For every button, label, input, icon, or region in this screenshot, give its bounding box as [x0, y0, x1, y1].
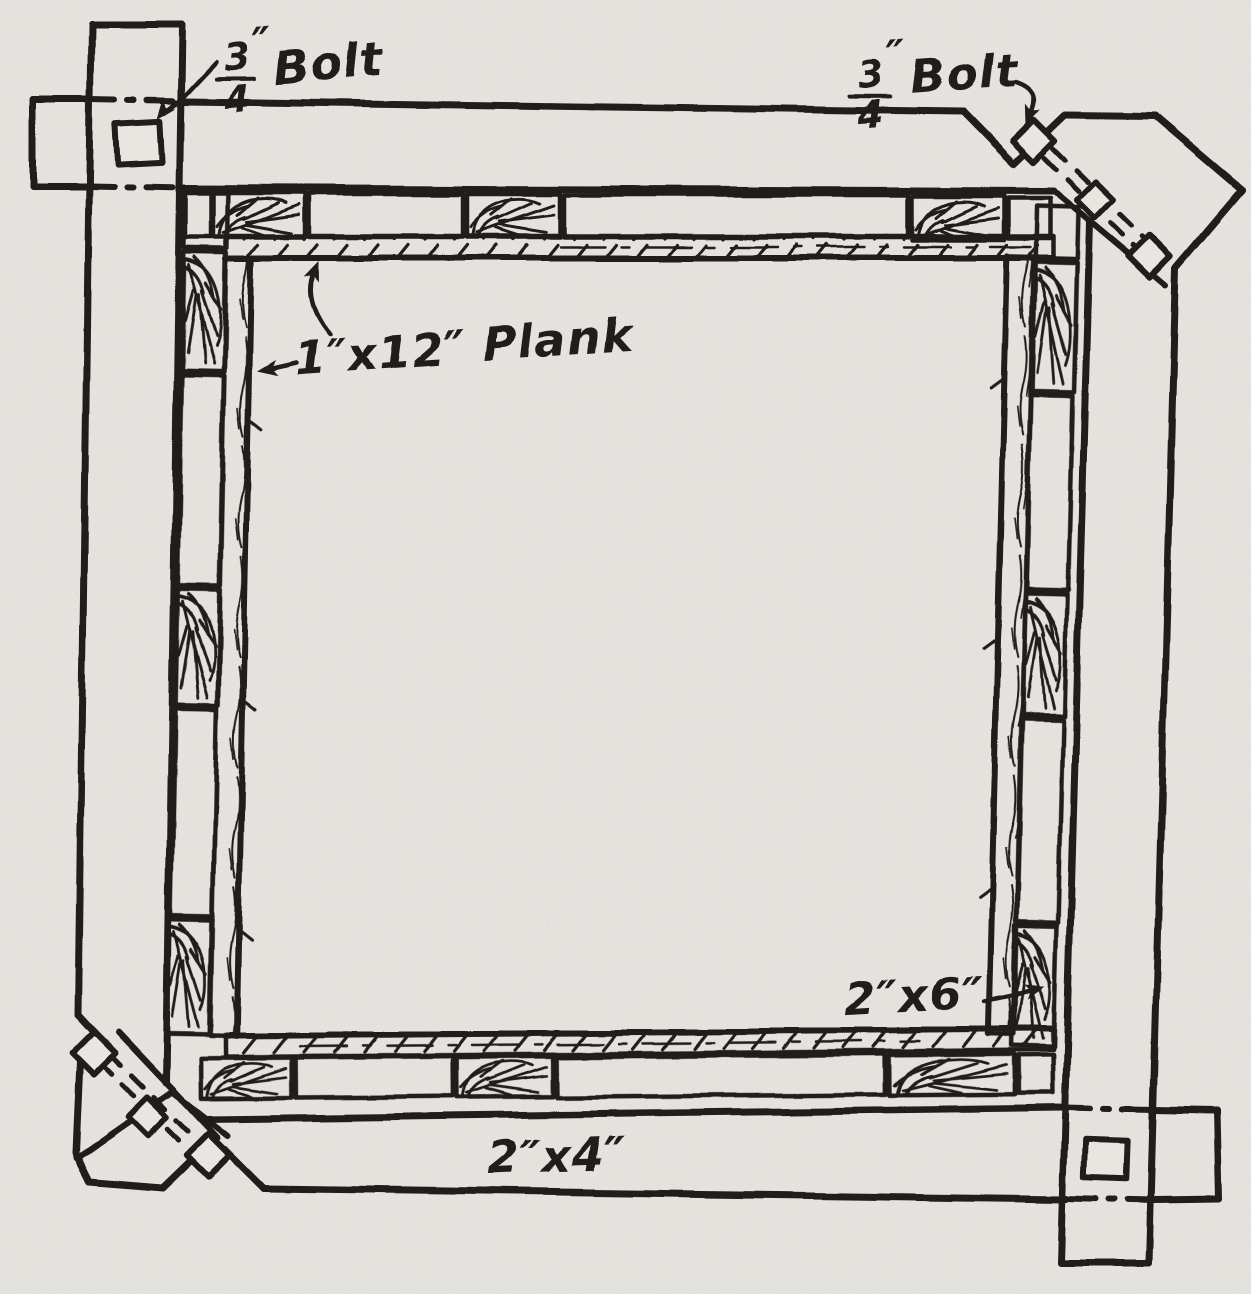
stud-label-text: 2″x6″ — [843, 965, 985, 1026]
fraction-numerator: 3 — [856, 52, 886, 98]
hidden-edge — [1065, 1108, 1152, 1110]
fraction-denominator: 4 — [854, 92, 885, 138]
label-rail: 2″x4″ — [486, 1127, 628, 1186]
hidden-edge — [1067, 1199, 1154, 1201]
label-stud: 2″x6″ — [843, 965, 985, 1026]
hidden-edge — [89, 99, 184, 101]
bolt-word: Bolt — [272, 32, 386, 95]
fraction-numerator: 3 — [222, 34, 253, 80]
rail-bottom-right-end — [1216, 1111, 1218, 1200]
blueprint-canvas: 3 4 ″ Bolt 3 4 ″ Bolt — [0, 0, 1251, 1294]
bolt-head-bottom-right — [1084, 1139, 1128, 1179]
inch-mark: ″ — [886, 31, 909, 81]
bolt-word: Bolt — [908, 43, 1021, 105]
form-plan-drawing: 3 4 ″ Bolt 3 4 ″ Bolt — [0, 0, 1251, 1294]
fraction-denominator: 4 — [221, 76, 253, 122]
bolt-head-top-left — [116, 121, 162, 165]
hidden-edge — [89, 186, 184, 188]
rail-label-text: 2″x4″ — [486, 1127, 628, 1186]
